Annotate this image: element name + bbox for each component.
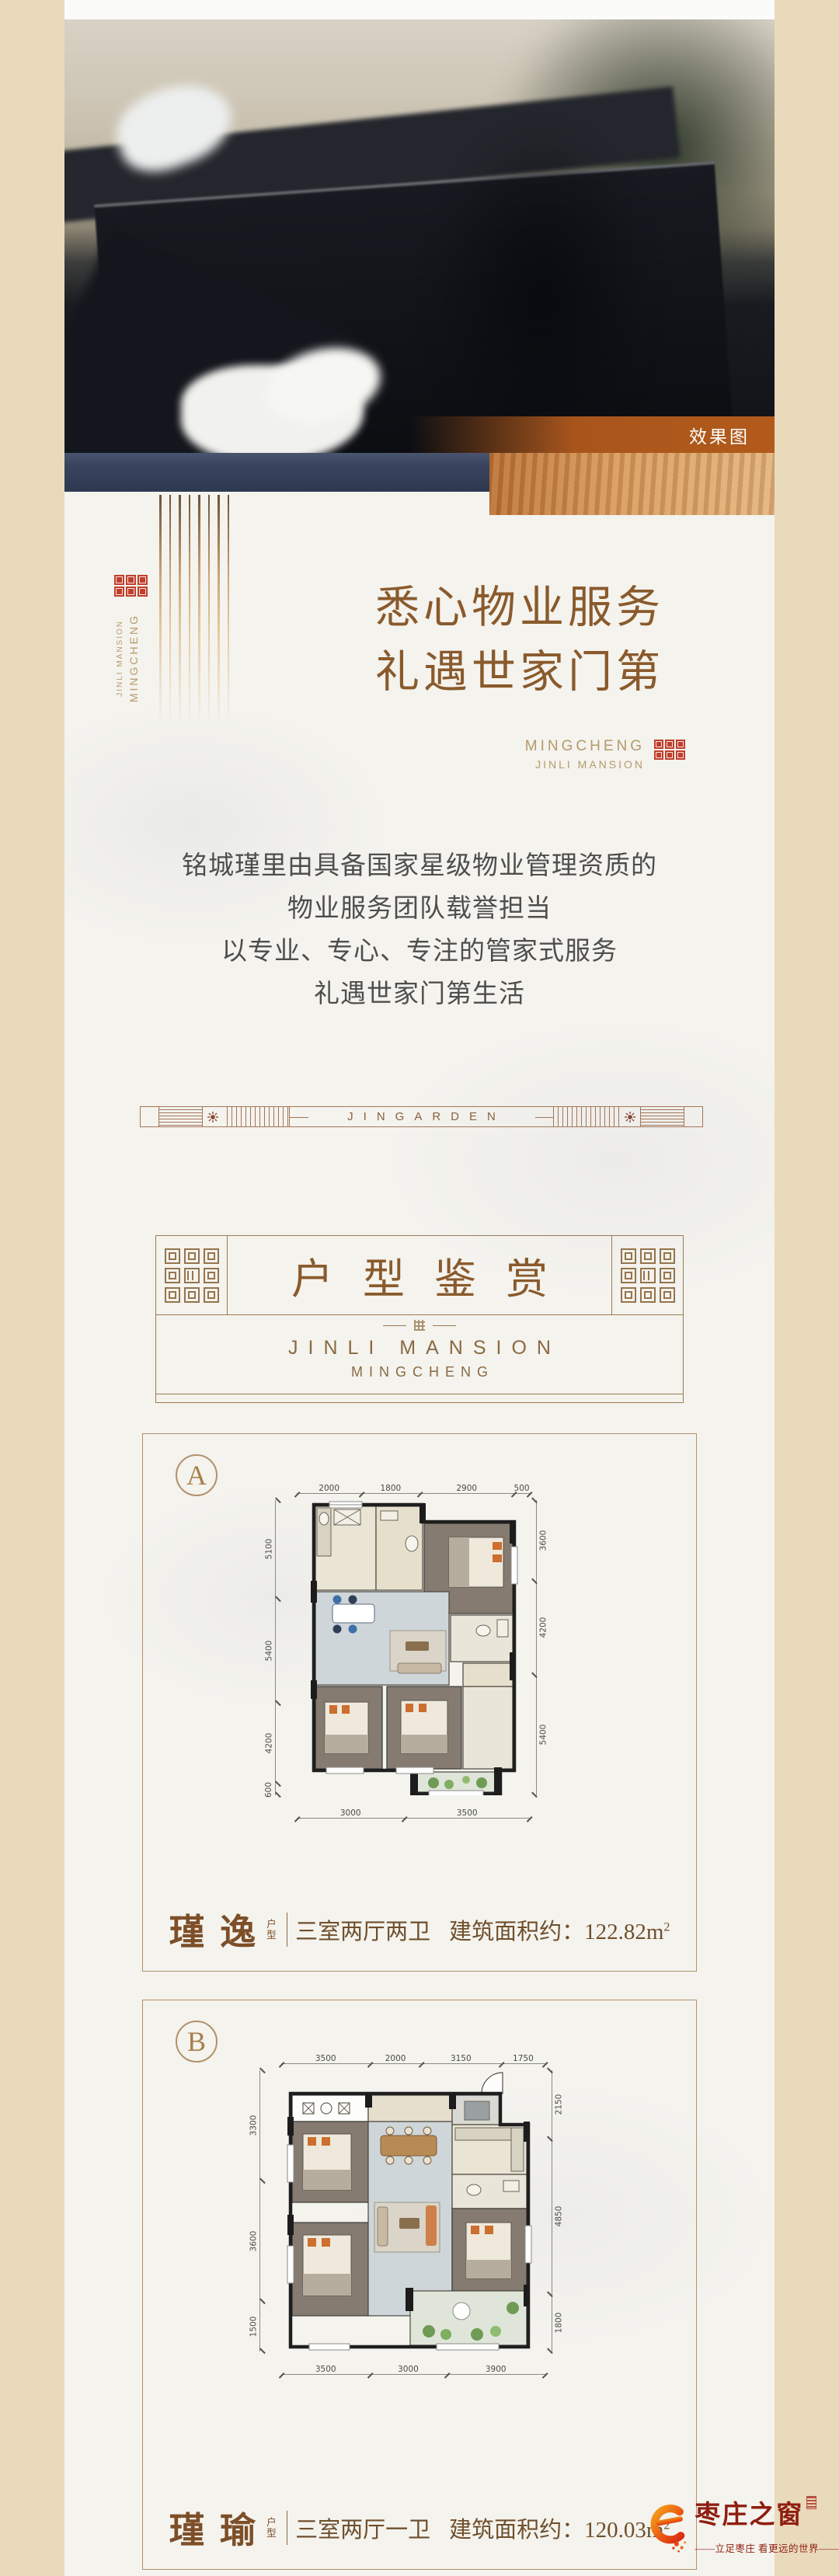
floorplan-card-b: B 3500 2000 3150 1750 3300 3600 1500 [142,2000,697,2570]
header-top-row: 户型鉴赏 [156,1236,683,1315]
caption-divider [287,2511,287,2545]
wood-accent-block [489,453,775,515]
plan-a-caption: 瑾 逸 户型 三室两厅两卫建筑面积约：122.82m2 [143,1904,696,1955]
plan-a-dims-top: 2000 1800 2900 500 [297,1477,530,1494]
fret-pattern-icon [621,1248,675,1303]
render-tag-bar: 效果图 [409,416,775,453]
watermark-seal-icon [806,2496,816,2509]
dim-segment: 2150 [552,2070,565,2139]
floorplan-section-title: 户型鉴赏 [228,1236,611,1314]
plan-a-drawing-area: 2000 1800 2900 500 5100 5400 4200 600 [263,1477,576,1819]
dim-segment: 4200 [536,1581,549,1675]
plan-name-tag: 户型 [266,2517,279,2539]
dim-segment: 3900 [447,2362,546,2375]
dim-segment: 3500 [281,2362,370,2375]
divider-line [290,1107,308,1126]
hero-photo: 效果图 [64,19,775,453]
plan-area-value: 122.82m [584,1920,663,1944]
header-foot-line [156,1394,683,1394]
plan-area-sup: 2 [663,1920,670,1934]
brand-seal-left [114,575,158,597]
dim-segment: 1800 [552,2294,565,2351]
floor-plan-a-drawing [297,1500,530,1795]
dim-segment: 600 [263,1784,276,1795]
plan-a-dims-bottom: 3000 3500 [297,1801,530,1819]
dim-segment: 3150 [421,2051,501,2064]
subtitle-brand-line1: MINGCHENG [525,738,645,755]
plan-b-dims-left: 3300 3600 1500 [247,2070,275,2351]
section-title-line1: 悉心物业服务 [375,576,664,641]
dim-segment: 1500 [247,2301,260,2351]
dim-segment: 3000 [297,1805,404,1819]
dim-segment: 2000 [370,2051,420,2064]
dim-segment: 1800 [361,1481,419,1494]
plan-b-dims-right: 2150 4850 1800 [552,2070,580,2351]
plan-rooms: 三室两厅一卫 [295,2518,430,2543]
dim-segment: 5400 [536,1675,549,1795]
dim-segment: 4850 [552,2139,565,2294]
plan-a-dims-left: 5100 5400 4200 600 [263,1500,291,1795]
floorplan-section-header: 户型鉴赏 JINLI MANSION MINGCHENG [155,1235,684,1403]
dim-segment: 500 [513,1481,530,1494]
divider-line [535,1107,554,1126]
paragraph-line: 以专业、专心、专注的管家式服务 [64,931,775,973]
navy-accent-bar [64,453,489,492]
section-title-line2: 礼遇世家门第 [375,641,664,705]
divider-hatch [223,1107,290,1126]
red-seal-icon [114,575,158,597]
ornamental-divider: JINGARDEN [140,1106,703,1127]
dim-segment: 2900 [419,1481,513,1494]
divider-square [684,1107,702,1126]
dim-segment: 3500 [404,1805,530,1819]
plan-a-badge: A [176,1454,218,1496]
red-seal-icon [654,740,685,760]
plan-a-dims-right: 3600 4200 5400 [536,1500,564,1795]
watermark-tagline: ——立足枣庄 看更远的世界—— [695,2540,839,2555]
dim-segment: 5100 [263,1500,276,1599]
floorplan-card-a: A 2000 1800 2900 500 5100 5400 4200 600 [142,1433,697,1972]
e-swoosh-logo-icon [643,2483,690,2570]
dim-segment: 3500 [281,2051,370,2064]
plan-b-caption: 瑾 瑜 户型 三室两厅一卫建筑面积约：120.03m2 [143,2502,696,2553]
ornament-seal-right [611,1236,683,1314]
paragraph-line: 礼遇世家门第生活 [64,973,775,1016]
dim-segment: 5400 [263,1599,276,1703]
dim-segment: 2000 [297,1481,361,1494]
divider-hatch [640,1107,684,1126]
divider-label: JINGARDEN [308,1107,535,1126]
brand-vertical-text: JINLI MANSION MINGCHENG [116,614,140,715]
site-watermark: 枣庄之窗 ——立足枣庄 看更远的世界—— [643,2483,839,2574]
plan-description: 三室两厅一卫建筑面积约：120.03m2 [295,2512,670,2544]
top-white-strip [64,0,775,19]
watermark-text-block: 枣庄之窗 ——立足枣庄 看更远的世界—— [695,2494,839,2555]
divider-hatch [553,1107,620,1126]
section-subtitle-text: MINGCHENG JINLI MANSION [525,738,645,771]
plan-b-dims-bottom: 3500 3000 3900 [281,2358,545,2375]
floor-plan-b-drawing [281,2070,545,2351]
ornament-seal-left [156,1236,228,1314]
plan-b-dims-top: 3500 2000 3150 1750 [281,2047,545,2064]
plan-rooms: 三室两厅两卫 [295,1920,430,1944]
header-sub-line2: MINGCHENG [156,1364,683,1380]
gold-vertical-lines [159,495,229,726]
plan-description: 三室两厅两卫建筑面积约：122.82m2 [295,1913,670,1946]
subtitle-brand-line2: JINLI MANSION [525,758,645,771]
dim-segment: 3600 [536,1500,549,1581]
poster-page: 效果图 JINLI MANSION MINGCHENG 悉心物业服务 礼遇世家门… [0,0,839,2576]
plan-b-badge: B [176,2021,218,2063]
service-paragraph: 铭城瑾里由具备国家星级物业管理资质的 物业服务团队载誉担当 以专业、专心、专注的… [64,845,775,1016]
header-sub-line1: JINLI MANSION [156,1337,683,1359]
dim-segment: 3600 [247,2181,260,2301]
divider-hatch [159,1107,203,1126]
dim-segment: 4200 [263,1703,276,1784]
caption-divider [287,1913,287,1947]
fret-pattern-icon [165,1248,219,1303]
divider-square [141,1107,159,1126]
plan-name-tag: 户型 [266,1919,279,1941]
paragraph-line: 铭城瑾里由具备国家星级物业管理资质的 [64,845,775,888]
plan-b-drawing-area: 3500 2000 3150 1750 3300 3600 1500 [247,2047,592,2375]
section-title: 悉心物业服务 礼遇世家门第 [375,576,664,705]
header-motif [156,1320,683,1331]
grid-motif-icon [414,1320,425,1331]
plan-area-label: 建筑面积约： [449,2518,584,2543]
dim-segment: 3000 [370,2362,446,2375]
flower-medallion-icon [620,1107,640,1126]
watermark-site-name: 枣庄之窗 [695,2494,803,2531]
dim-segment: 3300 [247,2070,260,2181]
render-tag-label: 效果图 [689,422,750,448]
dim-segment: 1750 [501,2051,545,2064]
brand-vertical-subline: JINLI MANSION [116,620,124,697]
brand-vertical-mainline: MINGCHENG [127,614,140,702]
section-subtitle-block: MINGCHENG JINLI MANSION [525,738,685,771]
flower-medallion-icon [203,1107,223,1126]
plan-name: 瑾 逸 [169,1904,259,1955]
paper-background: 效果图 JINLI MANSION MINGCHENG 悉心物业服务 礼遇世家门… [64,0,775,2576]
photo-passenger-silhouette [433,128,650,453]
plan-name: 瑾 瑜 [169,2502,259,2553]
plan-area-label: 建筑面积约： [449,1920,584,1944]
paragraph-line: 物业服务团队载誉担当 [64,888,775,931]
